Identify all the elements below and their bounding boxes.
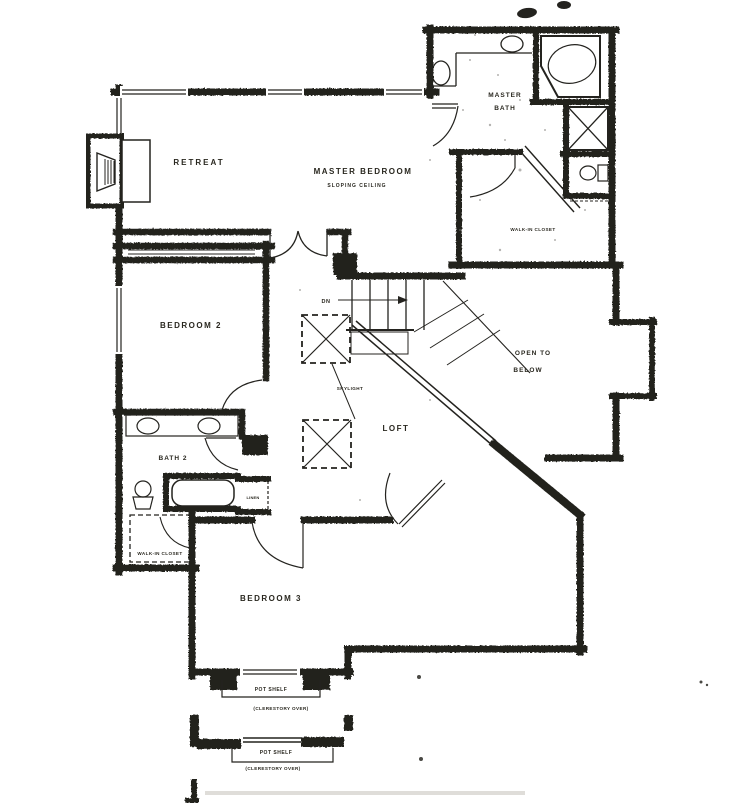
window-top-2 <box>266 86 304 98</box>
skylight-connector <box>332 364 355 419</box>
window-top-3 <box>384 86 424 98</box>
label-retreat: RETREAT <box>173 158 224 167</box>
sink-1 <box>501 36 523 52</box>
master-bath-door <box>432 104 458 146</box>
label-master-bath-1: MASTER <box>488 92 521 99</box>
corner-tub <box>541 36 600 97</box>
bedroom2-door <box>222 380 262 410</box>
bay-block-right <box>303 674 330 690</box>
railing <box>352 321 496 445</box>
scan-mark-foot <box>185 798 199 803</box>
stair-winders <box>414 300 500 365</box>
toilet-master <box>580 165 608 181</box>
bath2-door <box>205 438 238 470</box>
label-pot-shelf-upper: POT SHELF <box>255 687 288 693</box>
label-skylight: SKYLIGHT <box>337 386 363 391</box>
label-loft: LOFT <box>383 424 410 433</box>
stairs <box>338 280 530 373</box>
master-closet-door <box>470 152 515 197</box>
bedroom2-transom <box>128 250 255 254</box>
landing-box <box>351 332 408 354</box>
hearth <box>122 140 150 202</box>
label-master-bath-2: BATH <box>494 105 516 112</box>
lower-bay-wall-3 <box>344 715 353 731</box>
label-bedroom-2: BEDROOM 2 <box>160 321 222 330</box>
window-left-retreat <box>113 96 125 136</box>
fireplace <box>88 136 150 206</box>
lower-bay-wall-4 <box>301 737 344 747</box>
bathtub <box>172 480 234 506</box>
floor-plan-page: RETREAT MASTER BEDROOM SLOPING CEILING M… <box>0 0 744 803</box>
closet2-door <box>160 517 190 548</box>
label-master-bedroom: MASTER BEDROOM <box>314 167 413 176</box>
vanity-bath2 <box>126 415 238 436</box>
lower-bay-wall-2 <box>197 739 241 749</box>
window-lower-bay <box>243 738 301 742</box>
double-door <box>270 229 327 258</box>
bedroom3-door <box>252 522 303 568</box>
label-walk-in-closet-2: WALK-IN CLOSET <box>137 551 182 556</box>
smudge-line <box>205 791 525 795</box>
label-sloping-ceiling: SLOPING CEILING <box>327 183 386 189</box>
linework <box>126 36 610 762</box>
label-bath-2: BATH 2 <box>159 455 188 462</box>
stair-treads <box>352 280 424 330</box>
chase-bumpout-walls <box>612 320 654 398</box>
label-open-to-below-2: BELOW <box>513 367 542 374</box>
shower <box>568 107 608 150</box>
skylight-2 <box>303 420 351 468</box>
angled-door <box>386 473 446 527</box>
sink-2 <box>432 61 450 85</box>
window-bedroom3-bay <box>240 666 300 678</box>
label-clerestory-upper: (CLERESTORY OVER) <box>253 706 308 711</box>
label-clerestory-lower: (CLERESTORY OVER) <box>245 766 300 771</box>
label-bedroom-3: BEDROOM 3 <box>240 594 302 603</box>
window-left-bedroom2 <box>113 286 125 354</box>
bay-block-left <box>210 674 237 690</box>
label-dn: DN <box>322 299 331 305</box>
label-walk-in-closet-master: WALK-IN CLOSET <box>510 227 555 232</box>
retreat-bedroom2-walls <box>116 232 348 436</box>
toilet-bath2 <box>133 481 153 509</box>
wall-pier <box>333 253 357 275</box>
label-linen: LINEN <box>247 495 260 500</box>
sink-4 <box>198 418 220 434</box>
vanity-master <box>430 36 532 86</box>
label-pot-shelf-lower: POT SHELF <box>260 750 293 756</box>
window-top-1 <box>120 86 188 98</box>
label-open-to-below-1: OPEN TO <box>515 350 551 357</box>
floor-plan-drawing: RETREAT MASTER BEDROOM SLOPING CEILING M… <box>0 0 744 803</box>
hall-wall-chunk <box>242 435 268 455</box>
sink-3 <box>137 418 159 434</box>
skylight-1 <box>302 315 350 363</box>
